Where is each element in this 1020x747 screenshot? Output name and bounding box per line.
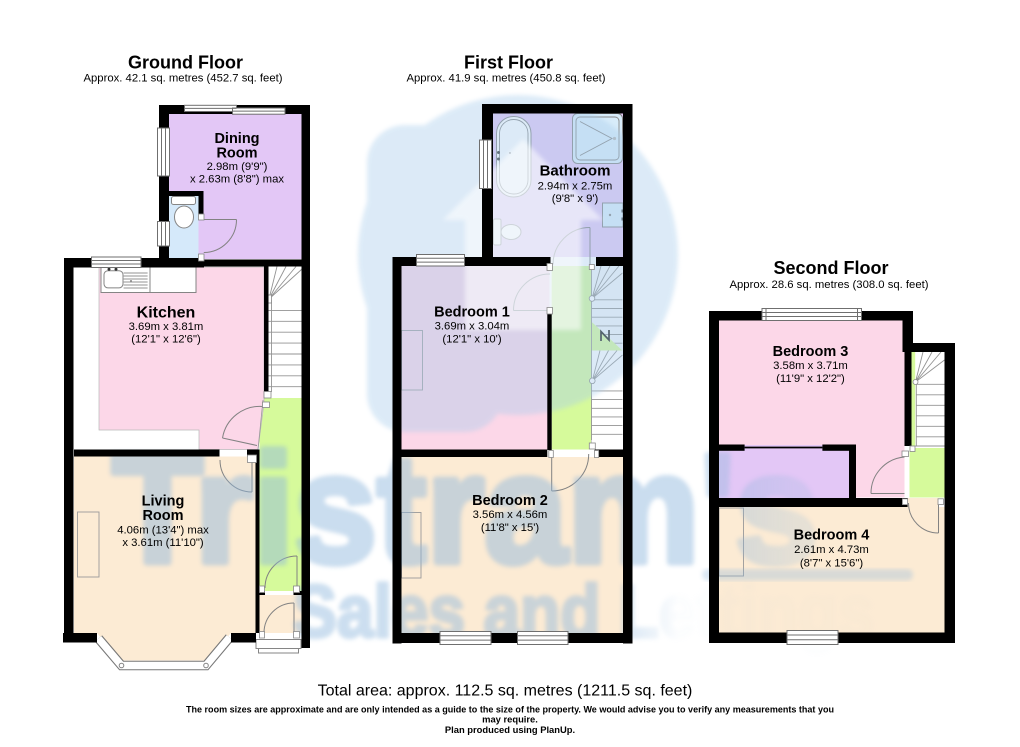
svg-text:3.69m x 3.81m: 3.69m x 3.81m — [129, 321, 204, 333]
svg-text:x 3.61m (11'10"): x 3.61m (11'10") — [122, 537, 204, 549]
svg-text:Second Floor: Second Floor — [773, 258, 888, 278]
svg-text:4.06m (13'4") max: 4.06m (13'4") max — [117, 525, 209, 537]
svg-text:(12'1" x 12'6"): (12'1" x 12'6") — [131, 334, 201, 346]
svg-text:3.58m x 3.71m: 3.58m x 3.71m — [773, 360, 848, 372]
svg-text:3.69m x 3.04m: 3.69m x 3.04m — [435, 321, 510, 333]
svg-text:3.56m x 4.56m: 3.56m x 4.56m — [473, 509, 548, 521]
svg-text:Approx. 42.1 sq. metres (452.7: Approx. 42.1 sq. metres (452.7 sq. feet) — [83, 73, 282, 85]
svg-text:First Floor: First Floor — [464, 53, 553, 73]
svg-text:Room: Room — [216, 146, 257, 162]
svg-text:Plan produced using PlanUp.: Plan produced using PlanUp. — [445, 724, 575, 735]
svg-text:Bathroom: Bathroom — [540, 163, 611, 180]
svg-text:Kitchen: Kitchen — [137, 305, 196, 322]
svg-text:(8'7" x 15'6"): (8'7" x 15'6") — [800, 557, 863, 569]
svg-text:Ground Floor: Ground Floor — [128, 53, 243, 73]
svg-text:Room: Room — [142, 508, 183, 524]
svg-text:Approx. 41.9 sq. metres (450.8: Approx. 41.9 sq. metres (450.8 sq. feet) — [406, 73, 605, 85]
svg-text:(9'8" x 9'): (9'8" x 9') — [552, 193, 599, 205]
svg-text:(11'9" x 12'2"): (11'9" x 12'2") — [776, 373, 845, 385]
svg-text:Bedroom 1: Bedroom 1 — [434, 305, 510, 321]
svg-text:2.94m x 2.75m: 2.94m x 2.75m — [538, 181, 613, 193]
svg-text:(11'8" x 15'): (11'8" x 15') — [481, 522, 540, 534]
svg-text:Approx. 28.6 sq. metres (308.0: Approx. 28.6 sq. metres (308.0 sq. feet) — [729, 279, 928, 291]
svg-text:Bedroom 3: Bedroom 3 — [773, 344, 849, 360]
svg-text:2.61m x 4.73m: 2.61m x 4.73m — [794, 544, 869, 556]
svg-text:Bedroom 2: Bedroom 2 — [472, 493, 548, 509]
svg-text:Total area: approx. 112.5 sq.: Total area: approx. 112.5 sq. metres (12… — [318, 683, 693, 700]
svg-text:2.98m (9'9"): 2.98m (9'9") — [207, 161, 268, 173]
svg-text:Bedroom 4: Bedroom 4 — [794, 528, 870, 544]
svg-text:(12'1" x 10'): (12'1" x 10') — [442, 334, 501, 346]
svg-text:x 2.63m (8'8") max: x 2.63m (8'8") max — [190, 174, 284, 186]
